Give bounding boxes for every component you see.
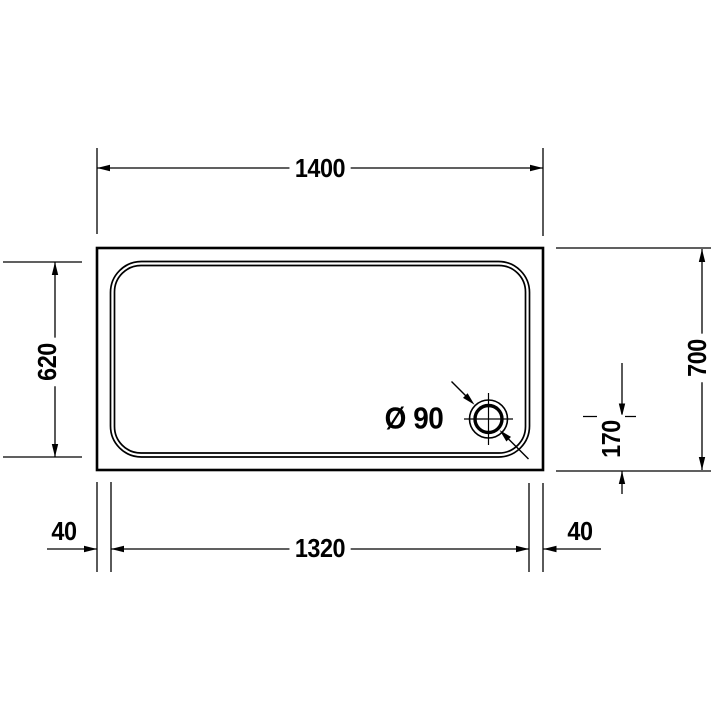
dim-bottom-width-arrow-left xyxy=(111,546,124,552)
dim-label-drain-offset: 170 xyxy=(597,415,625,464)
dim-rim-left-arrow xyxy=(84,546,97,552)
shower-tray xyxy=(97,248,543,470)
dim-label-right-height: 700 xyxy=(683,334,711,383)
dim-right-height-arrow-top xyxy=(699,249,705,262)
dim-label-rim-right: 40 xyxy=(562,517,598,545)
dim-top-width-arrow-left xyxy=(97,165,110,171)
dim-left-height-arrow-top xyxy=(52,262,58,275)
dim-label-left-height: 620 xyxy=(33,338,61,387)
dim-left-height-arrow-bottom xyxy=(52,444,58,457)
dim-label-bottom-width: 1320 xyxy=(289,534,350,562)
drawing-svg xyxy=(0,0,720,720)
dim-label-top-width: 1400 xyxy=(289,154,350,182)
tray-outer-edge xyxy=(97,248,543,470)
dim-top-width-arrow-right xyxy=(530,165,543,171)
technical-drawing-canvas: 1400 620 700 170 40 1320 40 Ø 90 xyxy=(0,0,720,720)
dim-label-rim-left: 40 xyxy=(46,517,82,545)
dim-right-height-arrow-bottom xyxy=(699,457,705,470)
dim-bottom-width-arrow-right xyxy=(516,546,529,552)
dim-drain-offset-arrow-up xyxy=(619,471,625,484)
drain-diameter-label: Ø 90 xyxy=(382,402,446,435)
dim-rim-right-arrow xyxy=(544,546,557,552)
